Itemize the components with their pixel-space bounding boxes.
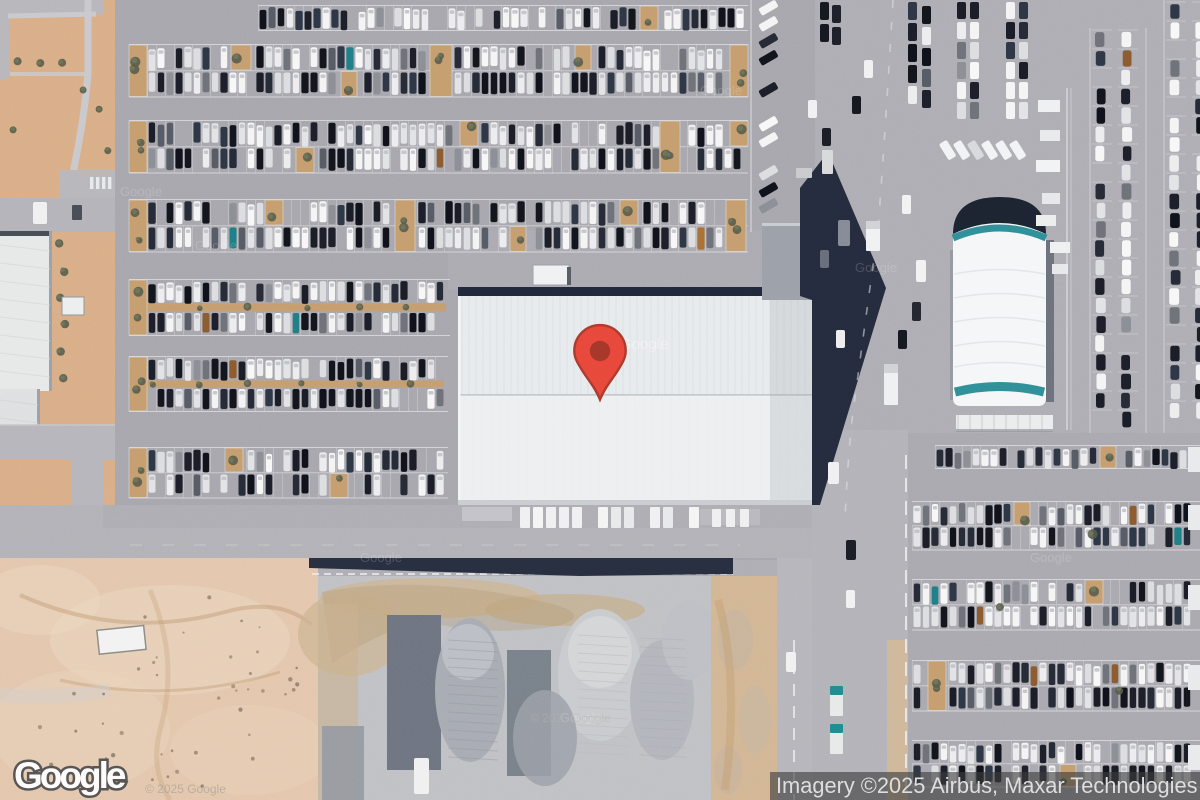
svg-text:Imagery ©2025 Airbus, Maxar Te: Imagery ©2025 Airbus, Maxar Technologies [776,773,1198,798]
svg-text:Google: Google [14,755,126,796]
